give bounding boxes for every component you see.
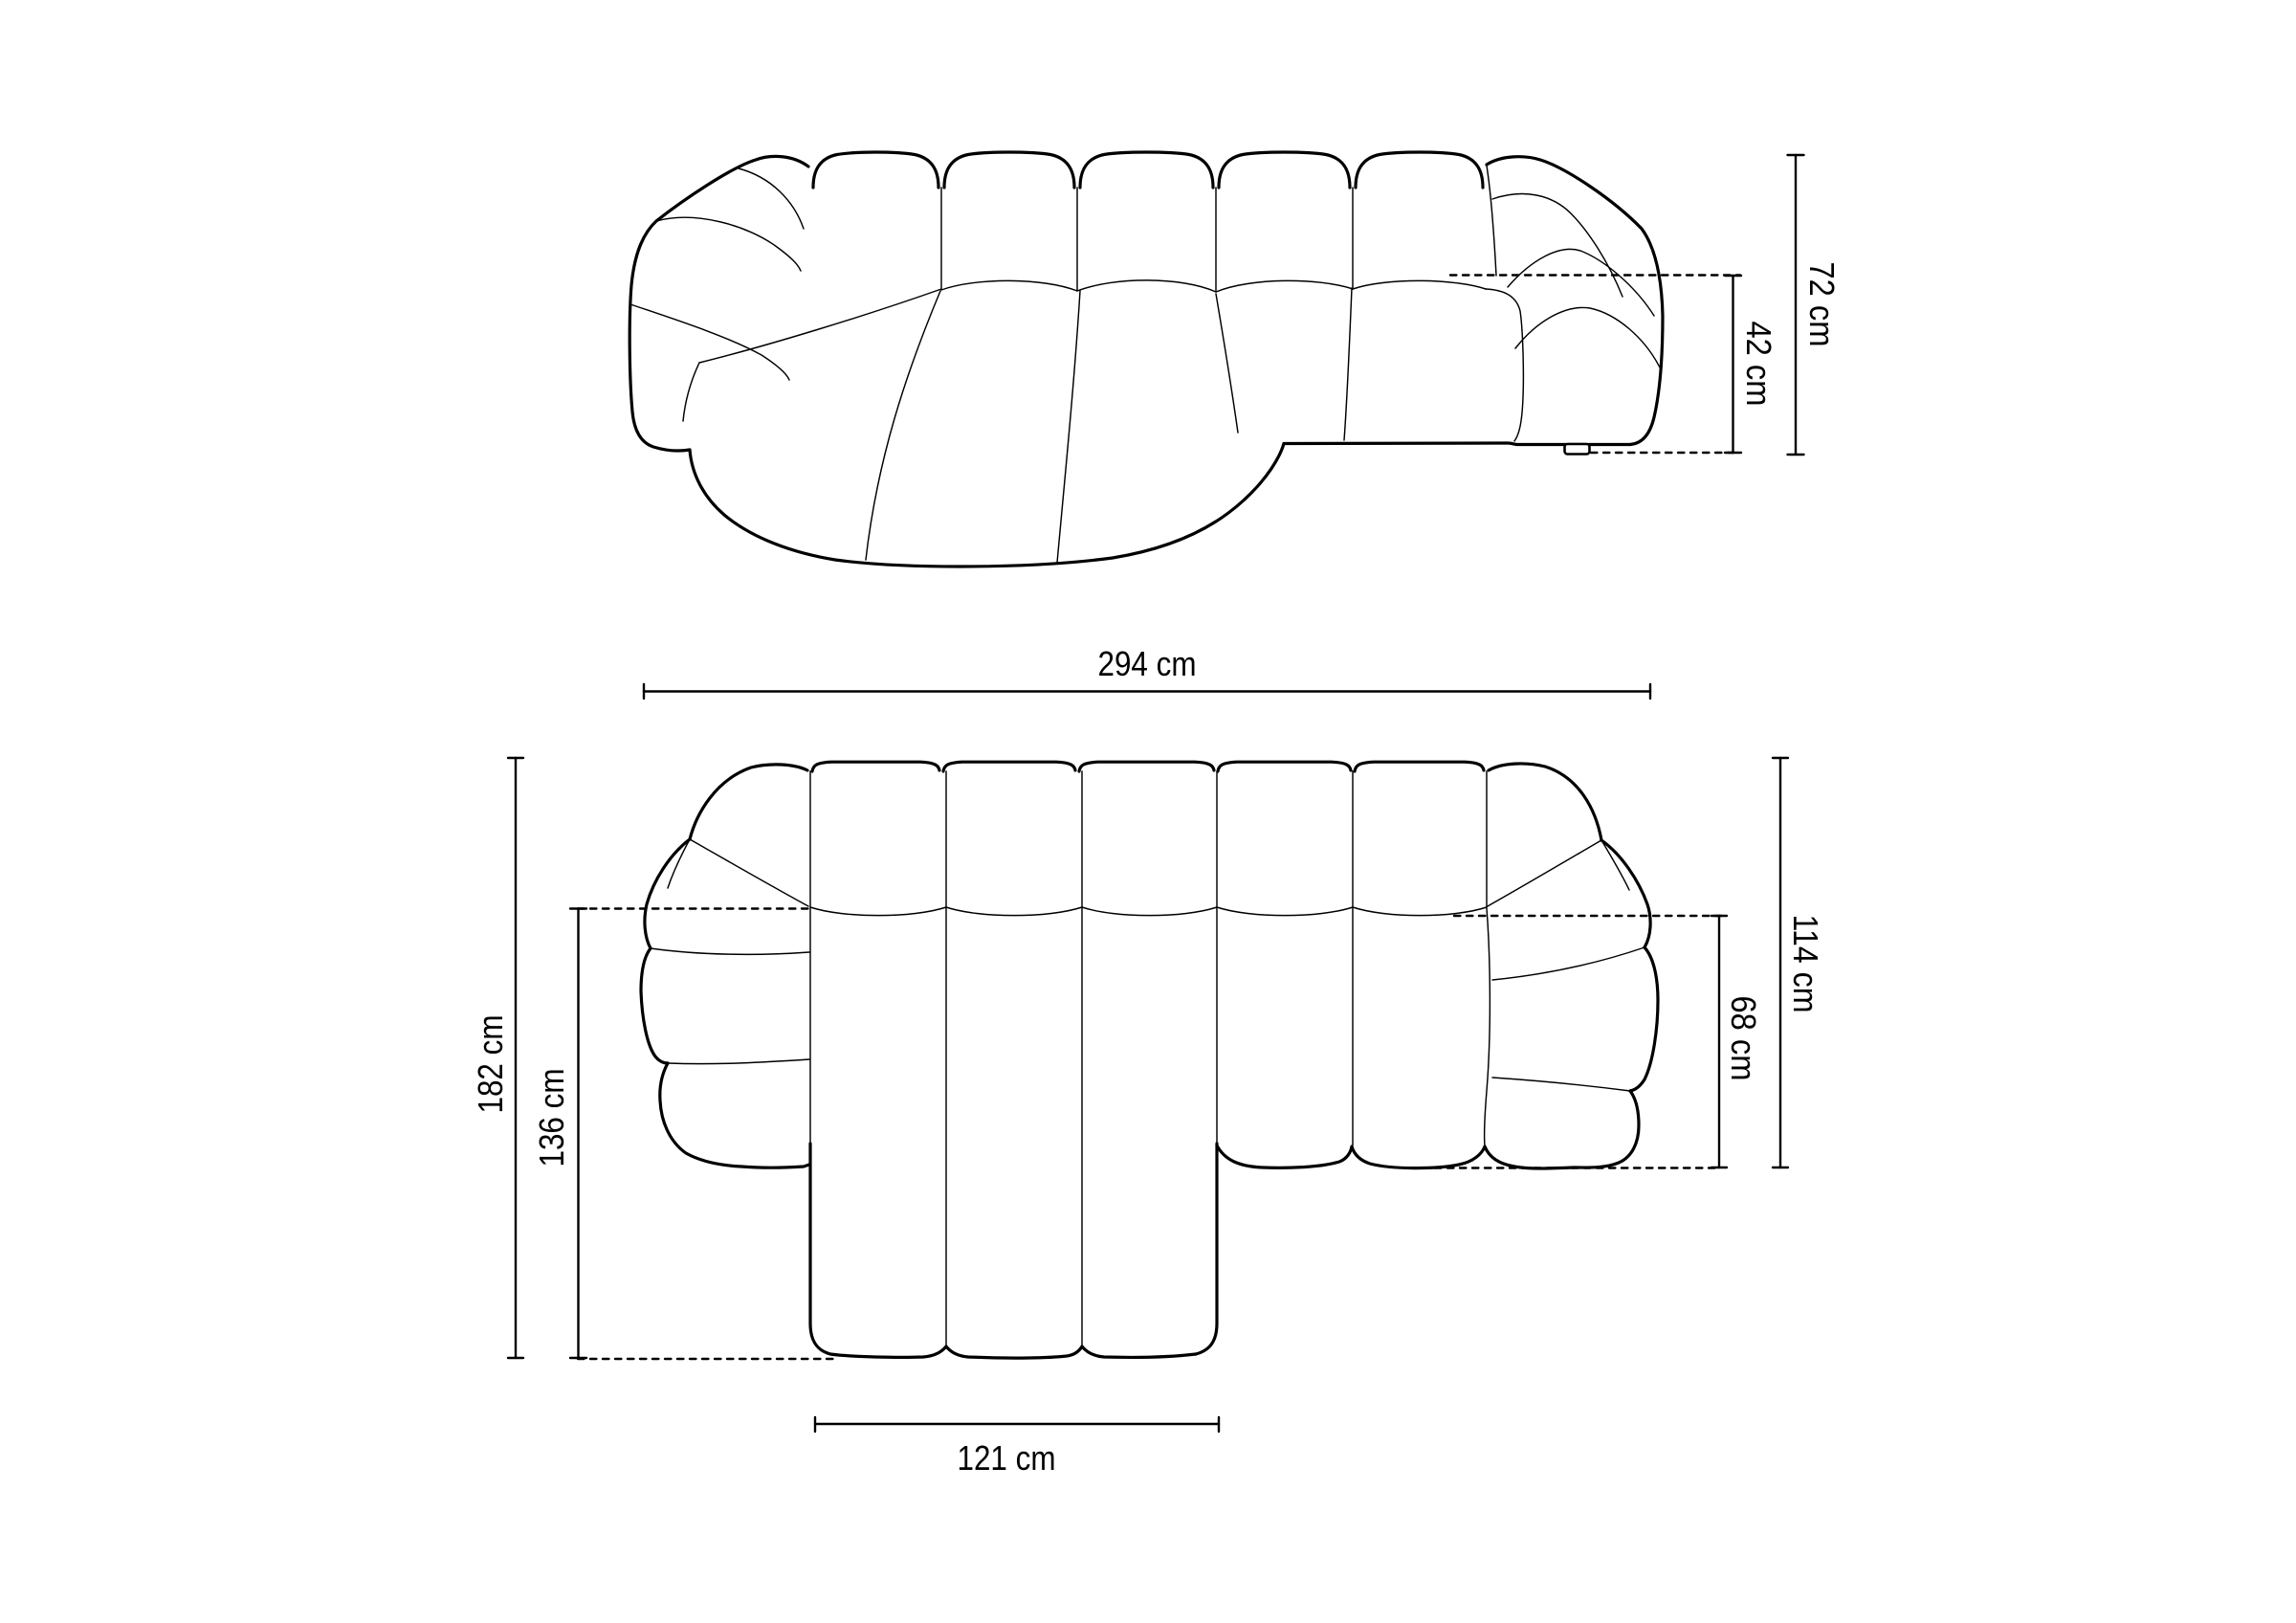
svg-text:182 cm: 182 cm [471, 1015, 510, 1114]
svg-text:68 cm: 68 cm [1724, 996, 1763, 1081]
svg-text:121 cm: 121 cm [958, 1438, 1056, 1478]
svg-text:136 cm: 136 cm [532, 1069, 571, 1167]
svg-text:114 cm: 114 cm [1786, 915, 1825, 1013]
svg-text:294 cm: 294 cm [1098, 644, 1197, 683]
svg-text:72 cm: 72 cm [1802, 262, 1842, 347]
svg-text:42 cm: 42 cm [1739, 322, 1778, 407]
